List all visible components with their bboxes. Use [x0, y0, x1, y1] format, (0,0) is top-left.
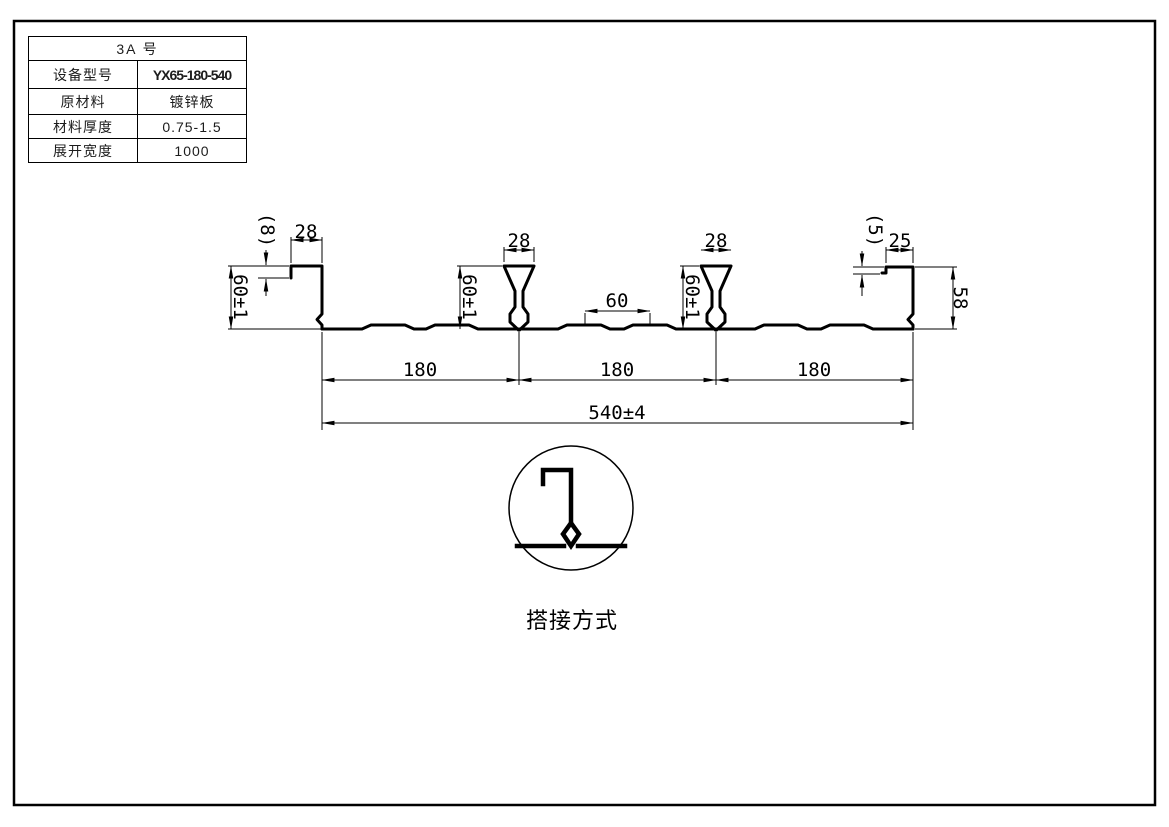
- dim-text-overall: 540±4: [588, 402, 645, 424]
- dim-text-pitch-3: 180: [797, 359, 831, 381]
- detail-caption: 搭接方式: [526, 608, 618, 633]
- table-label-material: 原材料: [29, 89, 138, 115]
- dim-text-left-height: 60±1: [229, 274, 251, 320]
- dimension-texts: (8) 28 60±1 28 60±1 60 28 60±1 (5) 25 58…: [229, 213, 971, 424]
- dim-text-left-crest: 28: [295, 221, 318, 243]
- dim-text-right-lip: (5): [864, 213, 886, 247]
- table-label-model: 设备型号: [29, 61, 138, 89]
- dim-text-rib1-height: 60±1: [458, 274, 480, 320]
- dim-text-pitch-1: 180: [403, 359, 437, 381]
- dim-text-right-crest: 25: [889, 230, 912, 252]
- table-title: 3A 号: [29, 37, 247, 61]
- table-label-thickness: 材料厚度: [29, 115, 138, 139]
- dim-text-right-height: 58: [949, 287, 971, 310]
- dim-text-mid-spacing: 60: [606, 290, 629, 312]
- dim-text-pitch-2: 180: [600, 359, 634, 381]
- table-label-unfolded-width: 展开宽度: [29, 139, 138, 163]
- profile-rib-2: [701, 266, 731, 330]
- dim-text-rib2-width: 28: [705, 230, 728, 252]
- table-value-model: YX65-180-540: [138, 61, 247, 89]
- spec-table: 3A 号 设备型号 YX65-180-540 原材料 镀锌板 材料厚度 0.75…: [28, 36, 247, 163]
- detail-hook-profile: [543, 470, 571, 523]
- table-value-material: 镀锌板: [138, 89, 247, 115]
- profile-outline: [291, 266, 913, 330]
- profile-right-end: [882, 267, 913, 329]
- cad-sheet: (8) 28 60±1 28 60±1 60 28 60±1 (5) 25 58…: [0, 0, 1169, 827]
- dim-text-left-lip: (8): [256, 213, 278, 247]
- detail-seam-diamond: [563, 523, 579, 546]
- profile-left-end: [291, 266, 322, 329]
- dim-text-rib1-width: 28: [508, 230, 531, 252]
- dim-text-rib2-height: 60±1: [681, 274, 703, 320]
- profile-base: [322, 325, 913, 329]
- lap-joint-detail: 搭接方式: [509, 446, 633, 633]
- table-value-unfolded-width: 1000: [138, 139, 247, 163]
- profile-rib-1: [504, 266, 534, 330]
- table-value-thickness: 0.75-1.5: [138, 115, 247, 139]
